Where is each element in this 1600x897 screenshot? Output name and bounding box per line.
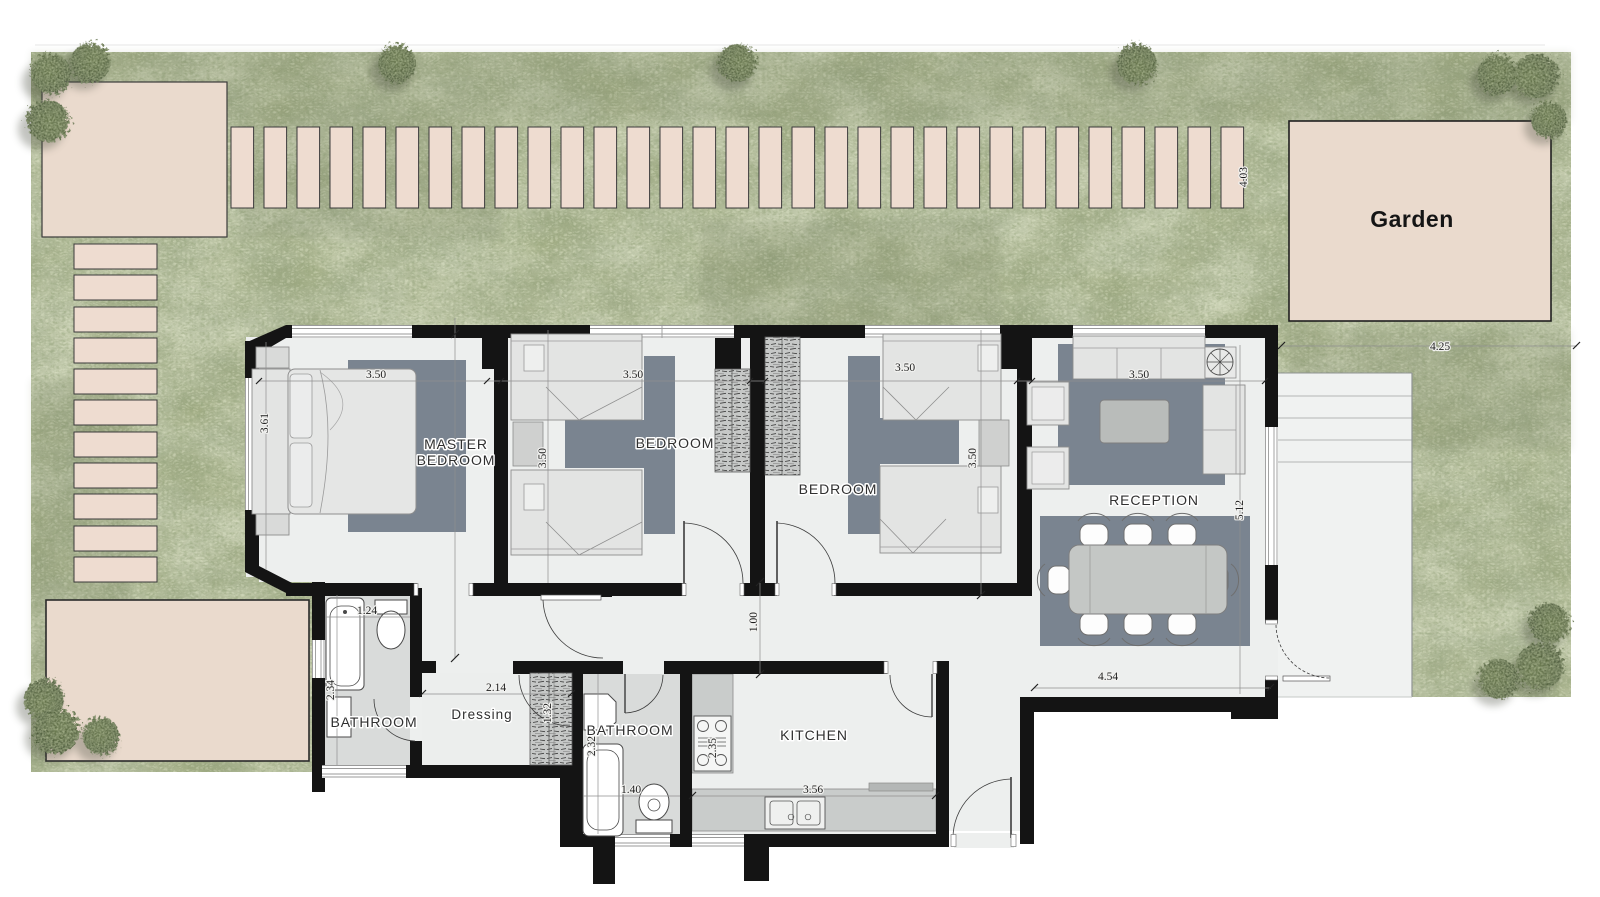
svg-text:3.50: 3.50 — [537, 448, 549, 468]
svg-text:2.14: 2.14 — [486, 682, 506, 694]
svg-text:2.34: 2.34 — [325, 680, 337, 700]
svg-text:MASTER: MASTER — [424, 436, 488, 452]
svg-text:BEDROOM: BEDROOM — [417, 452, 496, 468]
svg-text:BEDROOM: BEDROOM — [636, 435, 715, 451]
svg-text:BEDROOM: BEDROOM — [799, 481, 878, 497]
svg-text:3.50: 3.50 — [967, 448, 979, 468]
svg-text:3.50: 3.50 — [895, 362, 915, 374]
svg-text:BATHROOM: BATHROOM — [330, 714, 417, 730]
svg-text:KITCHEN: KITCHEN — [780, 727, 848, 743]
svg-text:1.24: 1.24 — [357, 605, 377, 617]
svg-text:1.00: 1.00 — [748, 612, 760, 632]
svg-text:1.40: 1.40 — [621, 784, 641, 796]
svg-text:Dressing: Dressing — [451, 707, 512, 722]
svg-text:4.03: 4.03 — [1238, 167, 1250, 187]
svg-text:BATHROOM: BATHROOM — [586, 722, 673, 738]
svg-text:3.61: 3.61 — [259, 413, 271, 433]
svg-text:Garden: Garden — [1370, 206, 1454, 232]
svg-text:2.35: 2.35 — [707, 738, 719, 758]
svg-text:4.25: 4.25 — [1430, 341, 1450, 353]
svg-text:3.50: 3.50 — [366, 369, 386, 381]
svg-text:2.32: 2.32 — [586, 736, 598, 756]
svg-text:4.54: 4.54 — [1098, 671, 1118, 683]
svg-text:5.12: 5.12 — [1234, 500, 1246, 520]
svg-text:RECEPTION: RECEPTION — [1109, 492, 1199, 508]
svg-text:1.32: 1.32 — [542, 703, 554, 723]
svg-text:3.50: 3.50 — [623, 369, 643, 381]
svg-text:3.50: 3.50 — [1129, 369, 1149, 381]
svg-text:3.56: 3.56 — [803, 784, 823, 796]
